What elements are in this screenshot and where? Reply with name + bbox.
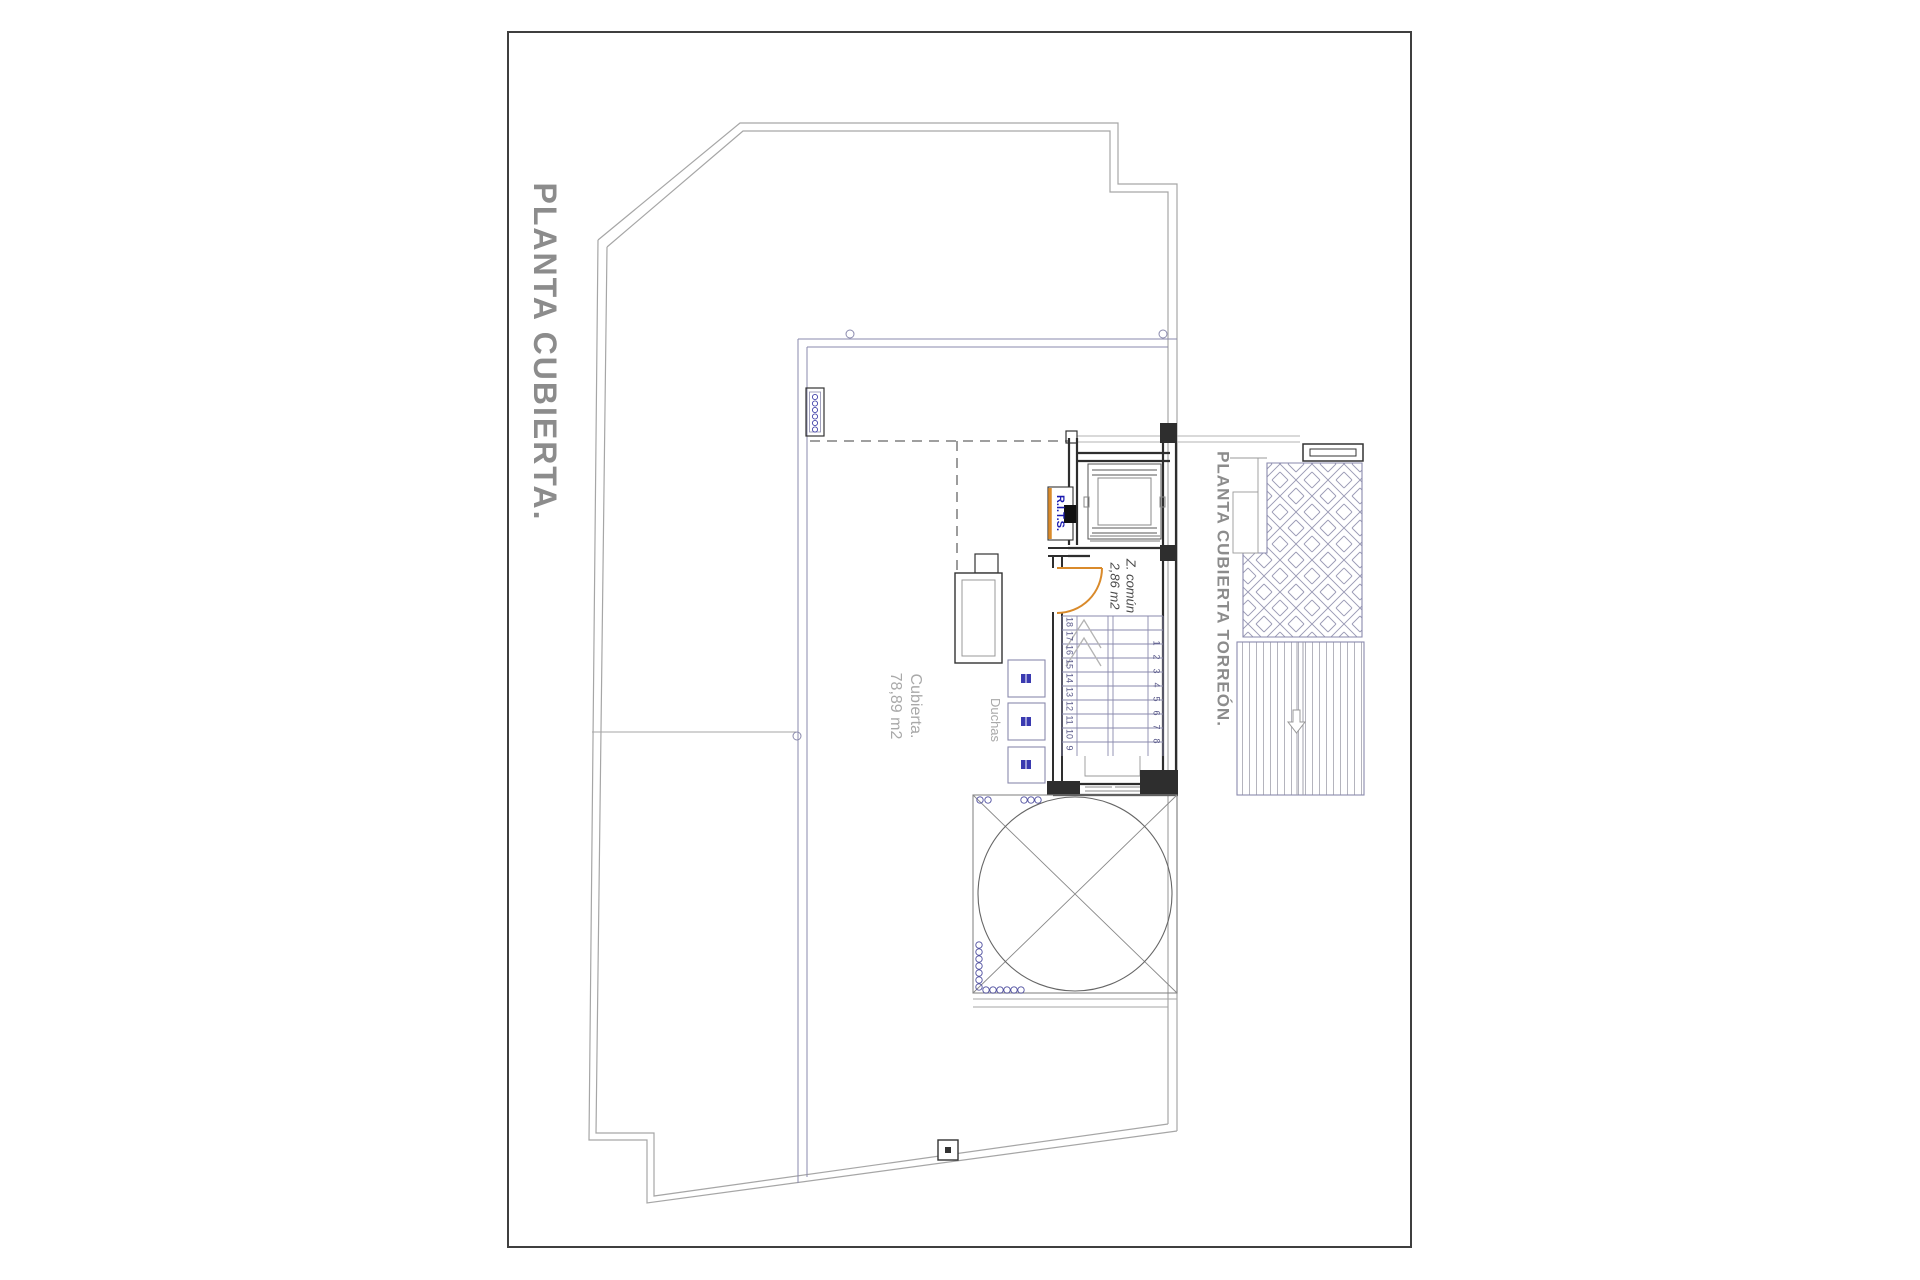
torreon-louvers [1237, 642, 1364, 795]
stair-number: 8 [1152, 738, 1161, 743]
zcomun-name: Z. común [1123, 559, 1138, 613]
torreon-plan [1230, 444, 1364, 795]
stair-number: 18 [1065, 617, 1074, 627]
stair-number: 1 [1152, 640, 1161, 645]
drain-square [938, 1140, 958, 1160]
duchas-label: Duchas [987, 698, 1003, 742]
stair-number: 6 [1152, 710, 1161, 715]
cubierta-area-label: Cubierta. 78,89 m2 [885, 673, 925, 740]
stair-number: 7 [1152, 724, 1161, 729]
floor-plan-drawing [0, 0, 1920, 1280]
stair-number: 3 [1152, 668, 1161, 673]
rits-label: R.I.T.S. [1052, 495, 1066, 531]
stair-number: 13 [1065, 687, 1074, 697]
stair-number: 15 [1065, 659, 1074, 669]
stair-number: 11 [1065, 715, 1074, 724]
stair-number: 17 [1065, 631, 1074, 641]
torreon-plan-title: PLANTA CUBIERTA TORREÓN. [1212, 451, 1233, 727]
zcomun-size: 2,86 m2 [1107, 563, 1122, 610]
stair-number: 9 [1065, 745, 1074, 750]
stair-number: 14 [1065, 673, 1074, 683]
screenshot-page: PLANTA CUBIERTA. PLANTA CUBIERTA TORREÓN… [0, 0, 1920, 1280]
stair-number: 12 [1065, 701, 1074, 711]
stair-number: 16 [1065, 645, 1074, 655]
stair-number: 4 [1152, 682, 1161, 687]
stair-number: 10 [1065, 729, 1074, 739]
cubierta-name: Cubierta. [907, 674, 924, 739]
torreon-side-structure [1233, 492, 1258, 553]
stair-number: 5 [1152, 696, 1161, 701]
plan-title: PLANTA CUBIERTA. [525, 183, 565, 522]
cubierta-size: 78,89 m2 [887, 673, 904, 740]
torreon-beam [1303, 444, 1363, 461]
stair-number: 2 [1152, 654, 1161, 659]
zcomun-area-label: Z. común 2,86 m2 [1106, 559, 1139, 613]
